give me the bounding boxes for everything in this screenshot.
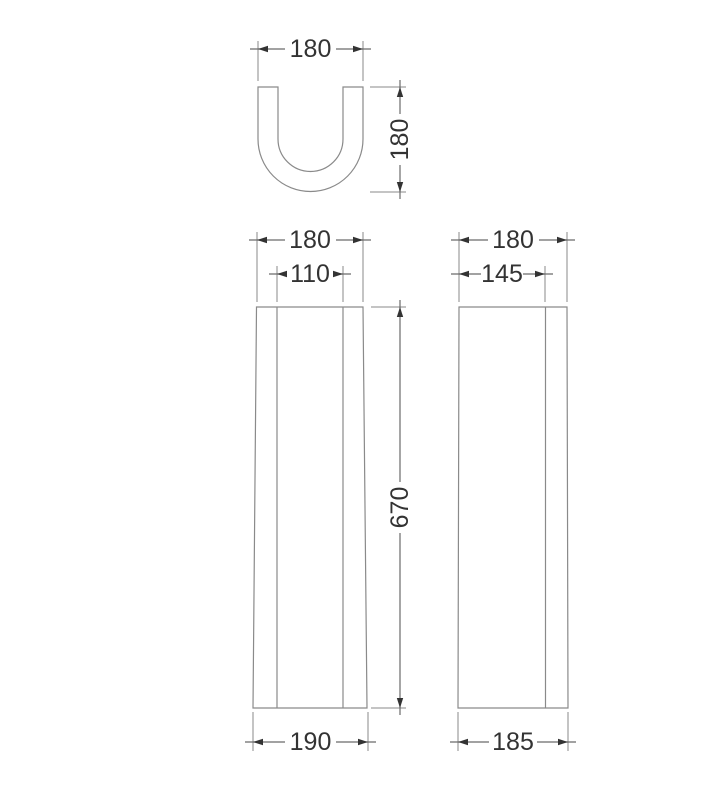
dim-label-top-width: 180 [290,35,332,63]
arrowhead-up [397,87,403,97]
arrowhead-left [257,237,267,243]
dim-label-side-base-width: 185 [492,728,534,756]
arrowhead-up [397,307,403,317]
arrowhead-right [557,237,567,243]
arrowhead-down [397,698,403,708]
front-outline [253,307,367,708]
dim-side-base-width: 185 [450,712,576,756]
dim-label-side-top-width: 180 [492,226,534,254]
arrowhead-right [333,271,343,277]
dim-front-recess-width: 110 [269,260,351,302]
dim-label-front-top-width: 180 [289,226,331,254]
arrowhead-left [458,739,468,745]
dim-front-height: 670 [371,300,414,715]
arrowhead-right [535,271,545,277]
dim-label-top-depth: 180 [386,119,414,161]
dim-top-view-depth: 180 [370,80,414,199]
dim-front-base-width: 190 [245,712,376,756]
drawing-canvas: 180 180 180 [0,0,706,796]
dim-label-side-panel-width: 145 [481,260,523,288]
dim-top-view-width: 180 [250,35,371,81]
top-section-view: 180 180 [250,35,414,199]
u-section-outline [258,87,363,192]
arrowhead-right [358,739,368,745]
arrowhead-right [353,237,363,243]
arrowhead-left [459,271,469,277]
arrowhead-down [397,182,403,192]
dim-side-panel-width: 145 [451,260,553,302]
dim-label-front-recess-width: 110 [290,260,330,288]
arrowhead-right [558,739,568,745]
side-outline [458,307,568,708]
arrowhead-left [258,46,268,52]
side-elevation-view: 180 145 185 [450,226,576,756]
arrowhead-right [353,46,363,52]
pedestal-technical-drawing: 180 180 180 [0,0,706,796]
arrowhead-left [459,237,469,243]
arrowhead-left [277,271,287,277]
dim-label-front-height: 670 [386,487,414,529]
front-elevation-view: 180 110 670 [245,226,414,756]
dim-label-front-base-width: 190 [290,728,332,756]
arrowhead-left [253,739,263,745]
